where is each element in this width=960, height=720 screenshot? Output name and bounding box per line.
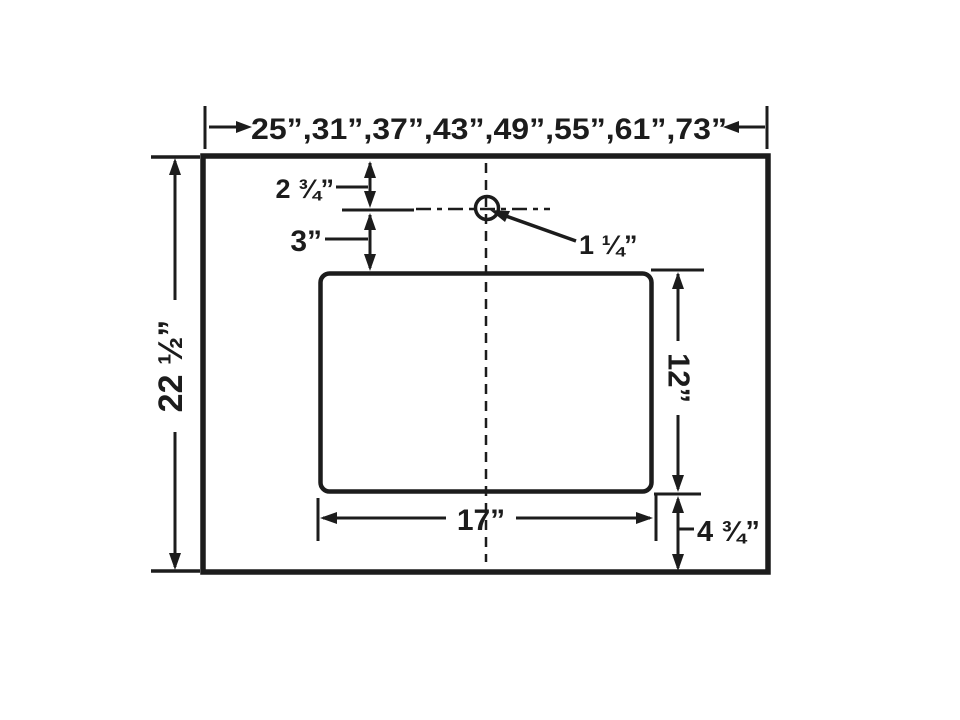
dim-overall-depth: 22 ½”	[151, 157, 200, 571]
arrow-up-icon	[364, 213, 376, 230]
cutout-depth-label: 12”	[662, 353, 697, 403]
diagram-canvas: 25”,31”,37”,43”,49”,55”,61”,73” 22 ½” 2 …	[0, 0, 960, 720]
arrow-down-icon	[169, 553, 181, 570]
arrow-down-icon	[364, 191, 376, 208]
arrow-down-icon	[672, 475, 684, 492]
countertop-dimension-diagram: 25”,31”,37”,43”,49”,55”,61”,73” 22 ½” 2 …	[0, 0, 960, 720]
arrow-down-icon	[672, 554, 684, 571]
faucet-offset-top-label: 2 ¾”	[275, 174, 334, 204]
arrow-up-icon	[169, 158, 181, 175]
arrow-right-icon	[236, 121, 252, 133]
overall-depth-label: 22 ½”	[152, 320, 190, 413]
dim-cutout-to-front: 4 ¾”	[654, 494, 760, 571]
dim-cutout-depth: 12”	[651, 270, 704, 492]
arrow-up-icon	[364, 161, 376, 178]
faucet-diameter-callout: 1 ¼”	[490, 210, 638, 260]
width-options-label: 25”,31”,37”,43”,49”,55”,61”,73”	[251, 113, 727, 146]
cutout-to-front-label: 4 ¾”	[697, 516, 760, 548]
arrow-up-icon	[672, 272, 684, 289]
leader-line	[503, 215, 576, 241]
arrow-down-icon	[364, 254, 376, 271]
dim-faucet-to-cutout: 3”	[290, 213, 376, 271]
arrow-right-icon	[636, 512, 653, 524]
cutout-width-label: 17”	[457, 504, 505, 537]
arrow-up-icon	[672, 496, 684, 513]
faucet-diameter-label: 1 ¼”	[579, 230, 638, 260]
faucet-to-cutout-label: 3”	[290, 225, 322, 258]
dim-cutout-width: 17”	[318, 494, 656, 541]
arrow-left-icon	[320, 512, 337, 524]
dim-faucet-offset-top: 2 ¾”	[275, 161, 414, 210]
dim-width-options: 25”,31”,37”,43”,49”,55”,61”,73”	[205, 106, 767, 149]
